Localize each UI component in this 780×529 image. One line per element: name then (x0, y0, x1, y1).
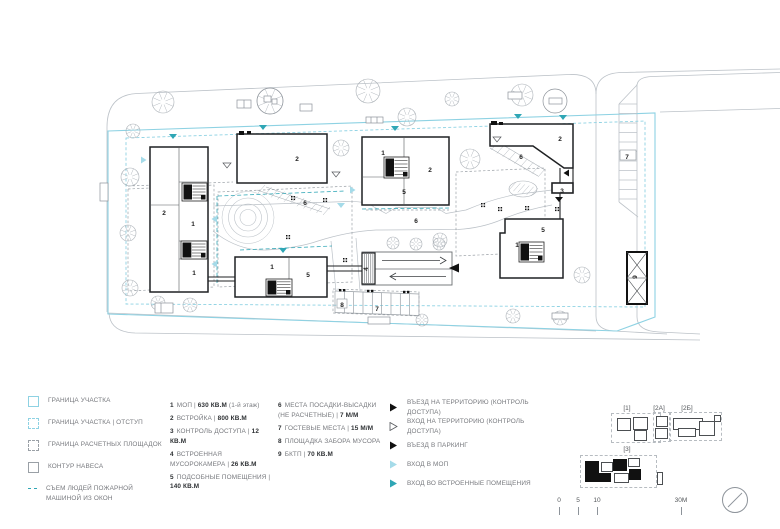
legend-item-number: 5 (170, 474, 174, 481)
plan-number-label: 6 (303, 200, 307, 207)
plan-number-label: 5 (541, 227, 545, 234)
tree-icon (574, 267, 590, 283)
legend-arrow-label: ВХОД НА ТЕРРИТОРИЮ (КОНТРОЛЬ ДОСТУПА) (407, 417, 559, 437)
legend-arrow-icon-light-cyan (389, 460, 398, 469)
legend-item-number: 6 (278, 402, 282, 409)
tree-icon (122, 280, 138, 296)
legend-site-item: 9БКТП | 70 КВ.М (278, 450, 384, 460)
plan-number-label: 6 (414, 218, 418, 225)
key-plan-2b (669, 412, 722, 441)
legend-arrow-label: ВХОД ВО ВСТРОЕННЫЕ ПОМЕЩЕНИЯ (407, 479, 531, 489)
vent-icon (343, 258, 347, 262)
legend-arrow-label: ВЪЕЗД НА ТЕРРИТОРИЮ (КОНТРОЛЬ ДОСТУПА) (407, 398, 559, 418)
legend-item-value: 140 КВ.М (170, 483, 199, 490)
legend-item-number: 1 (170, 402, 174, 409)
plan-number-label: 6 (519, 154, 523, 161)
legend-arrow-label: ВЪЕЗД В ПАРКИНГ (407, 441, 468, 451)
key-plan-label-2b: [2Б] (672, 405, 702, 412)
legend-item-number: 3 (170, 428, 174, 435)
key-plans: [1] [2А] [2Б] [3] (578, 402, 730, 494)
plan-number-label: 1 (192, 270, 196, 277)
legend-arrows: ВЪЕЗД НА ТЕРРИТОРИЮ (КОНТРОЛЬ ДОСТУПА)ВХ… (389, 398, 559, 493)
scale-tick (597, 507, 598, 515)
legend-item-number: 4 (170, 451, 174, 458)
plan-number-label: 8 (340, 302, 344, 309)
legend-arrow-item: ВЪЕЗД В ПАРКИНГ (389, 436, 559, 455)
plan-number-label: 2 (162, 210, 166, 217)
legend-boundary-label: ГРАНИЦА УЧАСТКА (48, 396, 111, 406)
scale-number: 30М (675, 497, 688, 504)
tree-icon (152, 91, 174, 113)
stair-core (266, 279, 292, 296)
tree-icon (356, 79, 380, 103)
plan-number-label: 1 (381, 150, 385, 157)
page: { "plan": { "labels": [ {"t":"2","x":164… (0, 0, 780, 529)
vent-icon (323, 198, 327, 202)
legend-arrow-item: ВХОД В МОП (389, 455, 559, 474)
plan-number-label: 7 (375, 306, 379, 313)
legend-swatch-dashed-cyan (28, 418, 39, 429)
tree-icon (126, 124, 140, 138)
legend-boundary-item: СЪЕМ ЛЮДЕЙ ПОЖАРНОЙ МАШИНОЙ ИЗ ОКОН (28, 484, 168, 504)
building-northeast (490, 124, 573, 168)
legend-swatch-line-teal (28, 488, 37, 489)
key-plan-label-2a: [2А] (644, 405, 674, 412)
legend-item-value: 800 КВ.М (218, 415, 247, 422)
legend-boundary-item: ГРАНИЦА УЧАСТКА | ОТСТУП (28, 418, 168, 429)
legend-item-number: 9 (278, 451, 282, 458)
tree-icon (398, 108, 416, 126)
legend-swatch-solid-cyan (28, 396, 39, 407)
stair-core (181, 241, 207, 259)
scale-tick (559, 507, 560, 515)
plan-number-label: 5 (306, 272, 310, 279)
legend-site-item: 7ГОСТЕВЫЕ МЕСТА | 15 М/М (278, 424, 384, 434)
legend-boundary-label: ГРАНИЦА УЧАСТКА | ОТСТУП (48, 418, 143, 428)
tree-icon (410, 238, 422, 250)
tree-icon (121, 168, 139, 186)
vent-icon (555, 207, 559, 211)
legend-arrow-icon-teal (389, 479, 398, 488)
plan-number-label: 5 (402, 189, 406, 196)
legend-item-value: 630 КВ.М (198, 402, 227, 409)
legend-boundary-label: ГРАНИЦА РАСЧЕТНЫХ ПЛОЩАДОК (48, 440, 162, 450)
vent-icon (525, 206, 529, 210)
scale-number: 10 (593, 497, 600, 504)
legend-item-value: 15 М/М (351, 425, 373, 432)
legend-boundary-item: ГРАНИЦА РАСЧЕТНЫХ ПЛОЩАДОК (28, 440, 168, 451)
legend-boundary-label: СЪЕМ ЛЮДЕЙ ПОЖАРНОЙ МАШИНОЙ ИЗ ОКОН (46, 484, 161, 504)
scale-number: 5 (576, 497, 580, 504)
building-north-a (237, 134, 327, 183)
legend-site-item: 6МЕСТА ПОСАДКИ-ВЫСАДКИ (НЕ РАСЧЕТНЫЕ) | … (278, 401, 384, 421)
key-plan-3 (580, 455, 657, 488)
stair-core (384, 157, 409, 178)
legend-site-item: 8ПЛОЩАДКА ЗАБОРА МУСОРА (278, 437, 384, 447)
legend-item-value: 7 М/М (340, 412, 359, 419)
plan-number-label: 1 (515, 242, 519, 249)
key-plan-3-annex (657, 472, 663, 485)
legend-arrow-item: ВХОД ВО ВСТРОЕННЫЕ ПОМЕЩЕНИЯ (389, 474, 559, 493)
tree-icon (460, 149, 480, 169)
site-plan-svg: 211212526663751158749 (0, 0, 780, 392)
parking-ramp (362, 252, 459, 285)
plan-number-label: 3 (560, 188, 564, 195)
tree-icon (333, 140, 349, 156)
plan-number-label: 2 (295, 156, 299, 163)
tree-icon (445, 92, 459, 106)
legend-site-items: 6МЕСТА ПОСАДКИ-ВЫСАДКИ (НЕ РАСЧЕТНЫЕ) | … (278, 401, 384, 463)
legend-arrow-label: ВХОД В МОП (407, 460, 448, 470)
tree-icon (433, 238, 445, 250)
plan-number-label: 1 (270, 264, 274, 271)
legend-item-number: 2 (170, 415, 174, 422)
stair-core (519, 242, 544, 262)
plan-number-label: 2 (428, 167, 432, 174)
scale-number: 0 (557, 497, 561, 504)
tree-icon (387, 237, 399, 249)
legend-area-item: 1МОП | 630 КВ.М (1-й этаж) (170, 401, 274, 411)
tree-icon (183, 298, 197, 312)
legend-area-item: 3КОНТРОЛЬ ДОСТУПА | 12 КВ.М (170, 427, 274, 447)
key-plan-label-3: [3] (612, 446, 642, 453)
legend-area-item: 4ВСТРОЕННАЯ МУСОРОКАМЕРА | 26 КВ.М (170, 450, 274, 470)
legend-boundary-label: КОНТУР НАВЕСА (48, 462, 103, 472)
legend-arrow-item: ВХОД НА ТЕРРИТОРИЮ (КОНТРОЛЬ ДОСТУПА) (389, 417, 559, 436)
plan-number-label: 4 (363, 267, 370, 271)
legend-area-item: 2ВСТРОЙКА | 800 КВ.М (170, 414, 274, 424)
legend-swatch-dashed-gray (28, 440, 39, 451)
scale-bar: 051030М (552, 497, 722, 517)
parking-entry-arrow (449, 264, 459, 273)
plan-number-label: 7 (625, 154, 629, 161)
plan-number-label: 2 (558, 136, 562, 143)
tree-icon (506, 309, 520, 323)
plan-number-label: 9 (632, 275, 639, 279)
legend-boundaries: ГРАНИЦА УЧАСТКАГРАНИЦА УЧАСТКА | ОТСТУПГ… (28, 396, 168, 515)
north-arrow-icon (722, 487, 748, 513)
legend-item-value: 26 КВ.М (231, 461, 257, 468)
legend-area-item: 5ПОДСОБНЫЕ ПОМЕЩЕНИЯ | 140 КВ.М (170, 473, 274, 493)
plan-number-label: 1 (191, 221, 195, 228)
legend-item-value: 12 КВ.М (170, 428, 259, 445)
legend-item-number: 8 (278, 438, 282, 445)
legend-swatch-solid-gray (28, 462, 39, 473)
vent-icon (286, 235, 290, 239)
scale-tick (578, 507, 579, 515)
legend-areas: 1МОП | 630 КВ.М (1-й этаж)2ВСТРОЙКА | 80… (170, 401, 274, 495)
scale-tick (681, 507, 682, 515)
legend-arrow-icon-outline (389, 422, 398, 431)
legend-item-number: 7 (278, 425, 282, 432)
site-plan: 211212526663751158749 (0, 0, 780, 392)
stair-core (182, 183, 207, 201)
vent-icon (498, 207, 502, 211)
legend-boundary-item: ГРАНИЦА УЧАСТКА (28, 396, 168, 407)
legend-boundary-item: КОНТУР НАВЕСА (28, 462, 168, 473)
legend-item-value: 70 КВ.М (307, 451, 333, 458)
legend-arrow-icon-black (389, 403, 398, 412)
legend-arrow-icon-black (389, 441, 398, 450)
legend-arrow-item: ВЪЕЗД НА ТЕРРИТОРИЮ (КОНТРОЛЬ ДОСТУПА) (389, 398, 559, 417)
key-plan-label-1: [1] (612, 405, 642, 412)
